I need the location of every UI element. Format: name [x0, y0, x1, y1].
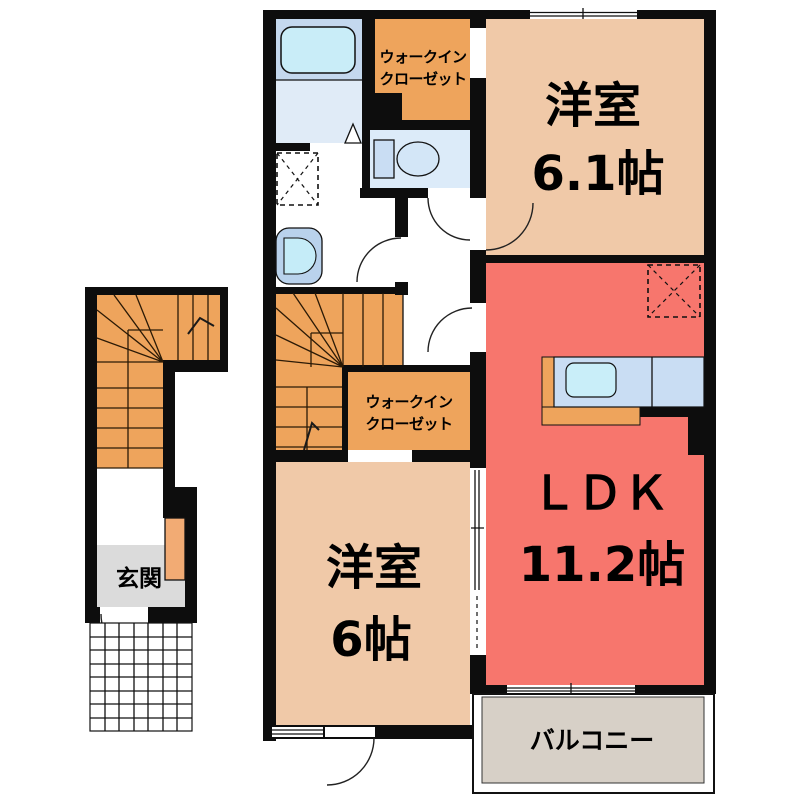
- wic-upper-label-line2: クローゼット: [379, 70, 466, 88]
- toilet-door-arc: [428, 198, 470, 240]
- bedroom1-size-label: 6.1帖: [531, 146, 664, 202]
- bedroom2-name-label: 洋室: [326, 540, 422, 596]
- ldk-door-opening: [470, 303, 486, 352]
- wic-upper-label-line1: ウォークイン: [379, 48, 467, 66]
- bedroom1-door-opening: [470, 198, 486, 250]
- bathroom-door-sill: [310, 143, 362, 151]
- ldk-size-label: 11.2帖: [519, 537, 685, 593]
- porch-tile-grid: [90, 623, 192, 731]
- toilet-door-opening: [428, 188, 470, 198]
- bedroom2-size-label: 6帖: [330, 612, 411, 668]
- wall-bath-bottom: [276, 143, 312, 151]
- wall-toilet-top: [362, 120, 471, 130]
- bedroom2-door-arc: [327, 738, 374, 785]
- wall-stairbox-bottom: [163, 360, 228, 372]
- washroom-door-opening: [395, 237, 408, 282]
- wall-bedroom1-ldk: [470, 255, 716, 263]
- washbasin-icon: [276, 228, 322, 284]
- wall-entrance-jog: [163, 487, 197, 518]
- wall-top: [263, 10, 716, 19]
- closet-upper-opening: [470, 28, 486, 78]
- floor-plan-canvas: 洋室 6.1帖 ＬＤＫ 11.2帖 洋室 6帖 ウォークイン クローゼット ウォ…: [0, 0, 800, 800]
- washing-machine-space-icon: [277, 153, 318, 205]
- wall-entrance-left: [85, 287, 97, 623]
- wall-stairs-top: [263, 287, 408, 294]
- wic-lower-label-line2: クローゼット: [365, 415, 452, 433]
- main-stairs-lower: [276, 367, 342, 450]
- entry-stairs-lower: [97, 360, 163, 468]
- floor-plan-page: 洋室 6.1帖 ＬＤＫ 11.2帖 洋室 6帖 ウォークイン クローゼット ウォ…: [0, 0, 800, 800]
- wall-closet-lower-left: [342, 372, 348, 453]
- shoe-cabinet-icon: [165, 518, 185, 580]
- ldk-door-arc: [428, 308, 472, 352]
- main-stairs-upper: [276, 293, 403, 367]
- bathtub-icon: [281, 27, 355, 73]
- ldk-name-label: ＬＤＫ: [531, 466, 669, 520]
- kitchen-sink-icon: [566, 363, 616, 397]
- bedroom2-door-sill: [325, 727, 375, 737]
- walk-in-closet-lower-floor: [348, 372, 470, 453]
- entrance-block: 玄関: [85, 287, 228, 731]
- bedroom2-ldk-opening: [470, 468, 486, 655]
- bedroom1-top-window: [530, 8, 637, 19]
- bedroom2-bottom-window: [272, 727, 323, 737]
- wall-toilet-left: [362, 130, 370, 188]
- washroom-door-arc: [357, 238, 401, 282]
- wall-toilet-bottom: [360, 188, 428, 198]
- wall-stair-side: [163, 372, 175, 487]
- wall-left: [263, 10, 276, 741]
- entrance-label: 玄関: [116, 565, 162, 592]
- wall-kitchen-corner: [688, 407, 704, 455]
- wall-right: [704, 10, 716, 694]
- bedroom1-name-label: 洋室: [545, 78, 641, 134]
- bedroom1-floor: [486, 18, 704, 255]
- entrance-door-opening: [100, 607, 148, 623]
- balcony-label: バルコニー: [530, 726, 655, 755]
- main-unit: 洋室 6.1帖 ＬＤＫ 11.2帖 洋室 6帖 ウォークイン クローゼット ウォ…: [263, 8, 716, 793]
- closet-lower-door-opening: [348, 450, 412, 462]
- wic-lower-label-line1: ウォークイン: [365, 393, 453, 411]
- toilet-icon: [374, 140, 439, 178]
